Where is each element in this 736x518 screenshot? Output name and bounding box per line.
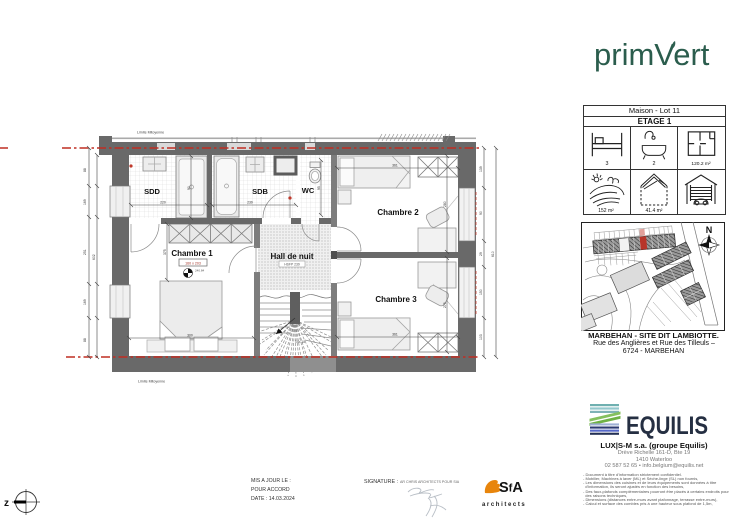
svg-text:90: 90 xyxy=(187,186,191,190)
svg-text:SfA: SfA xyxy=(499,480,523,496)
svg-text:103: 103 xyxy=(479,334,483,340)
svg-text:Chambre 3: Chambre 3 xyxy=(375,295,417,304)
svg-text:120.2 m²: 120.2 m² xyxy=(691,161,711,167)
svg-text:88: 88 xyxy=(83,338,87,342)
svg-text:169: 169 xyxy=(83,199,87,205)
svg-text:375: 375 xyxy=(163,249,167,255)
svg-text:95: 95 xyxy=(317,186,321,190)
svg-text:Limite Mitoyenne: Limite Mitoyenne xyxy=(137,131,164,135)
svg-text:Chambre 1: Chambre 1 xyxy=(171,249,213,258)
svg-text:280: 280 xyxy=(443,201,447,207)
svg-text:169: 169 xyxy=(83,299,87,305)
svg-text:41.4 m²: 41.4 m² xyxy=(646,208,663,214)
svg-text:HSFP 239: HSFP 239 xyxy=(284,263,300,267)
svg-text:z: z xyxy=(4,498,9,509)
svg-text:220: 220 xyxy=(160,201,166,205)
svg-text:Limite Mitoyenne: Limite Mitoyenne xyxy=(138,380,165,384)
svg-text:88: 88 xyxy=(83,168,87,172)
svg-text:160 x 203: 160 x 203 xyxy=(185,261,201,265)
svg-text:90: 90 xyxy=(479,211,483,215)
svg-text:WC: WC xyxy=(302,186,315,195)
svg-text:14x 18: 14x 18 xyxy=(295,340,305,344)
svg-text:Hall de nuit: Hall de nuit xyxy=(270,252,313,261)
svg-text:602: 602 xyxy=(92,254,96,260)
svg-text:150: 150 xyxy=(479,289,483,295)
svg-text:SDB: SDB xyxy=(252,187,268,196)
svg-text:361: 361 xyxy=(392,164,398,168)
svg-text:251: 251 xyxy=(83,249,87,255)
svg-text:239: 239 xyxy=(247,201,253,205)
svg-text:N: N xyxy=(706,225,713,235)
svg-text:3: 3 xyxy=(606,161,609,167)
svg-text:139: 139 xyxy=(479,166,483,172)
svg-text:300: 300 xyxy=(187,334,193,338)
svg-text:152 m²: 152 m² xyxy=(598,208,614,214)
svg-text:275: 275 xyxy=(443,302,447,308)
svg-text:Chambre 2: Chambre 2 xyxy=(377,208,419,217)
svg-text:240.84: 240.84 xyxy=(195,269,205,273)
svg-text:610: 610 xyxy=(491,251,495,257)
svg-text:29: 29 xyxy=(479,252,483,256)
svg-text:SDD: SDD xyxy=(144,187,160,196)
svg-text:2: 2 xyxy=(653,161,656,167)
svg-text:361: 361 xyxy=(392,333,398,337)
